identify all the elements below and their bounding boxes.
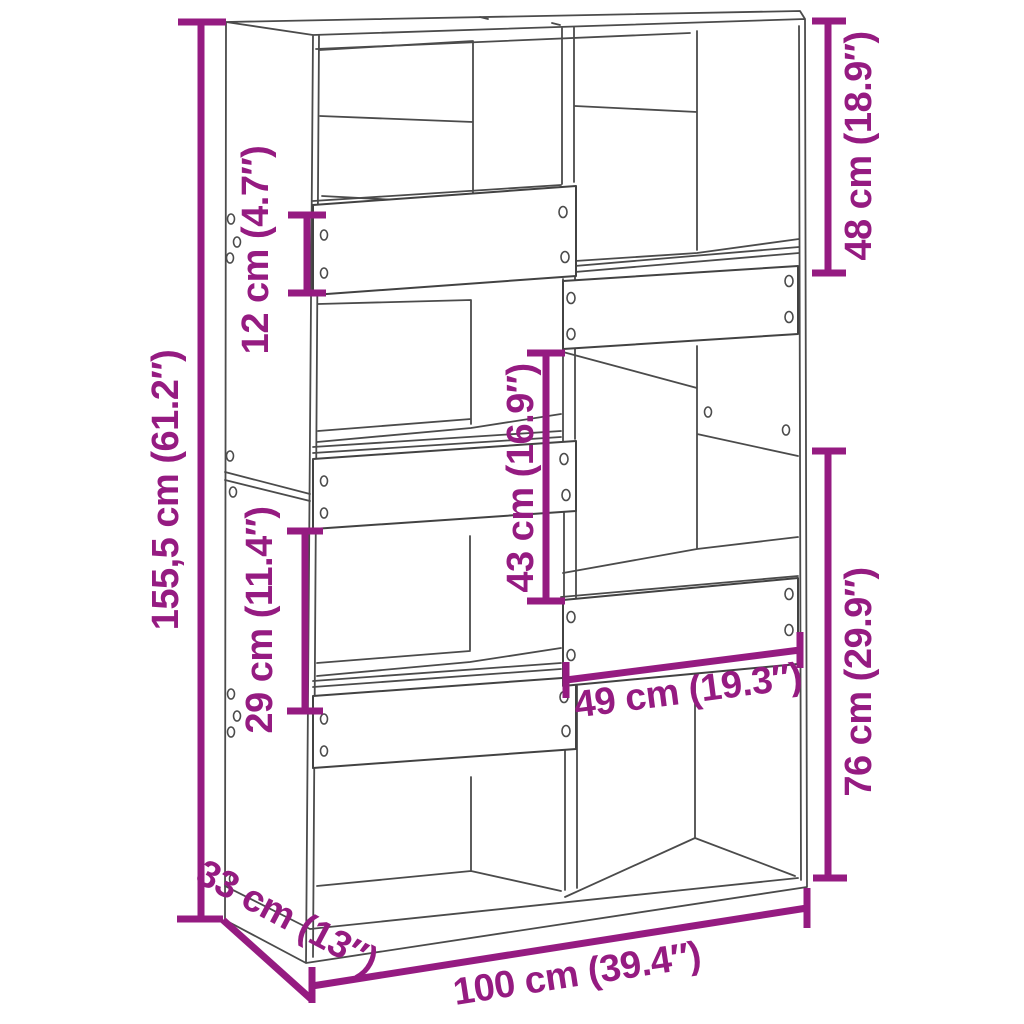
backer-board-top-right	[563, 266, 798, 349]
dimension-annotations: 155,5 cm (61.2″) 12 cm (4.7″) 48 cm (18.…	[145, 21, 880, 1014]
dimension-lower-right-compartment: 76 cm (29.9″)	[812, 451, 880, 878]
upper-right-compartment-label: 48 cm (18.9″)	[838, 31, 880, 260]
backer-board-bottom-left	[313, 677, 576, 768]
dimension-overall-height: 155,5 cm (61.2″)	[145, 22, 226, 919]
right-column-compartments	[561, 31, 799, 897]
middle-left-compartment-label: 29 cm (11.4″)	[239, 506, 281, 733]
dimension-diagram: 155,5 cm (61.2″) 12 cm (4.7″) 48 cm (18.…	[0, 0, 1024, 1024]
upper-left-gap-label: 12 cm (4.7″)	[235, 146, 277, 355]
middle-compartment-label: 43 cm (16.9″)	[500, 363, 542, 592]
middle-left-compartment-line	[287, 531, 323, 711]
dimension-upper-right-compartment: 48 cm (18.9″)	[812, 21, 880, 273]
dimension-middle-left-compartment: 29 cm (11.4″)	[239, 506, 323, 733]
overall-height-label: 155,5 cm (61.2″)	[145, 350, 187, 631]
lower-right-compartment-label: 76 cm (29.9″)	[838, 567, 880, 796]
diagram-canvas: 155,5 cm (61.2″) 12 cm (4.7″) 48 cm (18.…	[0, 0, 1024, 1024]
backer-board-top-left	[313, 186, 576, 295]
